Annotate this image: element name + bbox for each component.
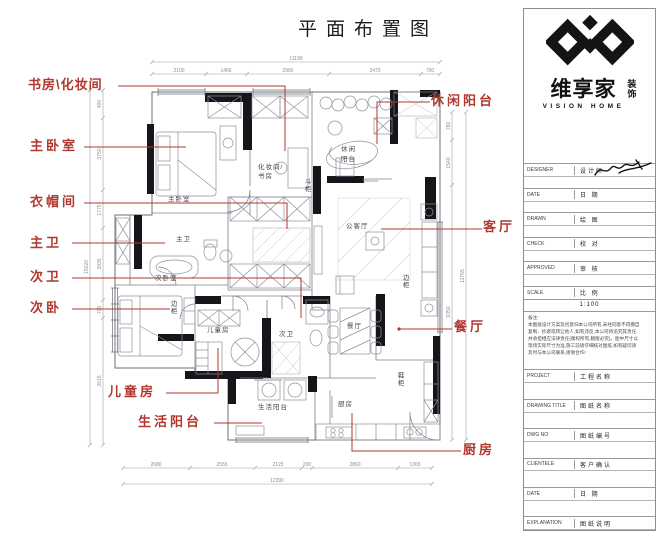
room-study-line1: 化妆间/: [258, 164, 283, 172]
svg-text:12390: 12390: [270, 478, 284, 484]
svg-text:2100: 2100: [173, 68, 184, 74]
row-date-1: DATE 日 期: [524, 188, 655, 201]
row-check: CHECK 校 对: [524, 237, 655, 250]
svg-text:9350: 9350: [446, 306, 452, 317]
svg-text:15020: 15020: [84, 260, 90, 274]
row-dwg-no: DWG NO 图纸编号: [524, 428, 655, 441]
label-closet: 衣帽间: [30, 195, 78, 208]
designer-signature: [592, 157, 654, 181]
label-living-room: 客厅: [483, 220, 515, 233]
svg-text:3750: 3750: [97, 148, 103, 159]
row-clientele-value: [524, 470, 655, 487]
row-scale: SCALE 比 例: [524, 286, 655, 299]
room-side-cabinet-bedroom: 边柜: [169, 300, 176, 315]
label-study-makeup: 书房\化妆间: [28, 78, 103, 91]
row-clientele: CLIENTELE 客户确认: [524, 458, 655, 471]
doors: [158, 179, 438, 440]
brand-name-cn: 维享家: [550, 79, 616, 100]
brand-suffix: 装 饰: [627, 79, 636, 100]
label-second-bath: 次卫: [30, 270, 62, 283]
svg-text:2615: 2615: [97, 375, 103, 386]
svg-text:2555: 2555: [216, 462, 227, 468]
svg-text:705: 705: [97, 306, 103, 315]
room-second-bath: 次卫: [279, 331, 294, 339]
room-master-bedroom: 主卧室: [168, 196, 191, 204]
label-master-bedroom: 主卧室: [30, 139, 78, 152]
svg-text:1466: 1466: [220, 68, 231, 74]
row-drawing-title: DRAWING TITLE 图纸名称: [524, 399, 655, 412]
room-master-bath: 主卫: [176, 236, 191, 244]
room-side-cabinet-living: 边柜: [401, 274, 408, 289]
row-designer: DESIGNER 设计师: [524, 163, 655, 176]
svg-text:1365: 1365: [409, 462, 420, 468]
svg-text:11755: 11755: [460, 269, 466, 283]
room-study-line2: 书房: [258, 173, 273, 181]
room-kitchen: 厨房: [338, 401, 353, 409]
floor-plan-sheet: 平面布置图: [0, 0, 660, 538]
svg-text:2860: 2860: [349, 462, 360, 468]
room-dining: 餐厅: [347, 323, 362, 331]
row-drawn-value: [524, 225, 655, 237]
brand-name-en: VISION HOME: [543, 103, 625, 110]
page-title: 平面布置图: [298, 14, 438, 41]
floor-plan-drawing: 11190 2100 1466 2965 3470 700 2680 2555 …: [20, 40, 520, 510]
svg-text:780: 780: [446, 122, 452, 131]
row-approved-value: [524, 274, 655, 286]
row-drawing-title-value: [524, 412, 655, 429]
label-laundry-balcony: 生活阳台: [138, 415, 202, 428]
outer-walls: [115, 92, 440, 440]
room-leisure-line1: 休闲: [341, 146, 356, 154]
row-project: PROJECT 工程名称: [524, 369, 655, 382]
label-kids-room: 儿童房: [108, 385, 156, 398]
row-explanation-value: [524, 529, 655, 530]
notes-block: 备注: 本图纸设计方案及创意归本公司所有,未经同意不得擅自 复制、抄袭或转让他人…: [524, 311, 655, 370]
svg-text:3935: 3935: [97, 258, 103, 269]
row-dwg-no-value: [524, 441, 655, 458]
svg-text:1775: 1775: [97, 204, 103, 215]
svg-text:200: 200: [303, 462, 312, 468]
title-block: 维享家 VISION HOME 装 饰 DESIGNER 设计师 DATE 日 …: [523, 8, 656, 531]
bearing-walls: [134, 90, 440, 414]
room-living: 公客厅: [346, 223, 369, 231]
row-project-value: [524, 382, 655, 399]
label-master-bath: 主卫: [30, 236, 62, 249]
room-laundry: 生活阳台: [258, 404, 288, 412]
row-check-value: [524, 250, 655, 262]
notes-title: 备注:: [528, 314, 651, 321]
svg-text:3470: 3470: [369, 68, 380, 74]
room-shoe-cabinet: 鞋柜: [396, 372, 403, 387]
row-date-1-value: [524, 201, 655, 213]
label-leisure-balcony: 休闲阳台: [431, 94, 495, 107]
svg-text:2680: 2680: [150, 462, 161, 468]
row-drawn: DRAWN 绘 图: [524, 212, 655, 225]
row-explanation: EXPLANATION 图纸说明: [524, 516, 655, 529]
brand-area: 维享家 VISION HOME 装 饰: [524, 9, 655, 163]
room-leisure-line2: 阳台: [341, 156, 356, 164]
row-date-2-value: [524, 500, 655, 517]
label-second-bedroom: 次卧: [30, 301, 62, 314]
partition-walls: [115, 92, 440, 440]
label-dining-room: 餐厅: [454, 320, 486, 333]
row-date-2: DATE 日 期: [524, 487, 655, 500]
svg-text:400: 400: [97, 100, 103, 109]
brand-logo-icon: [546, 9, 634, 77]
svg-text:1540: 1540: [446, 157, 452, 168]
svg-text:2965: 2965: [282, 68, 293, 74]
svg-text:11190: 11190: [289, 56, 302, 62]
room-chest-cabinet: 斗柜: [303, 178, 310, 193]
room-second-bedroom: 次卧室: [155, 275, 178, 283]
svg-text:2125: 2125: [272, 462, 283, 468]
scale-value: 1:100: [524, 299, 655, 311]
label-kitchen: 厨房: [463, 443, 495, 456]
room-kids: 儿童房: [207, 327, 230, 335]
row-approved: APPROVED 审 核: [524, 261, 655, 274]
svg-text:700: 700: [426, 68, 435, 74]
